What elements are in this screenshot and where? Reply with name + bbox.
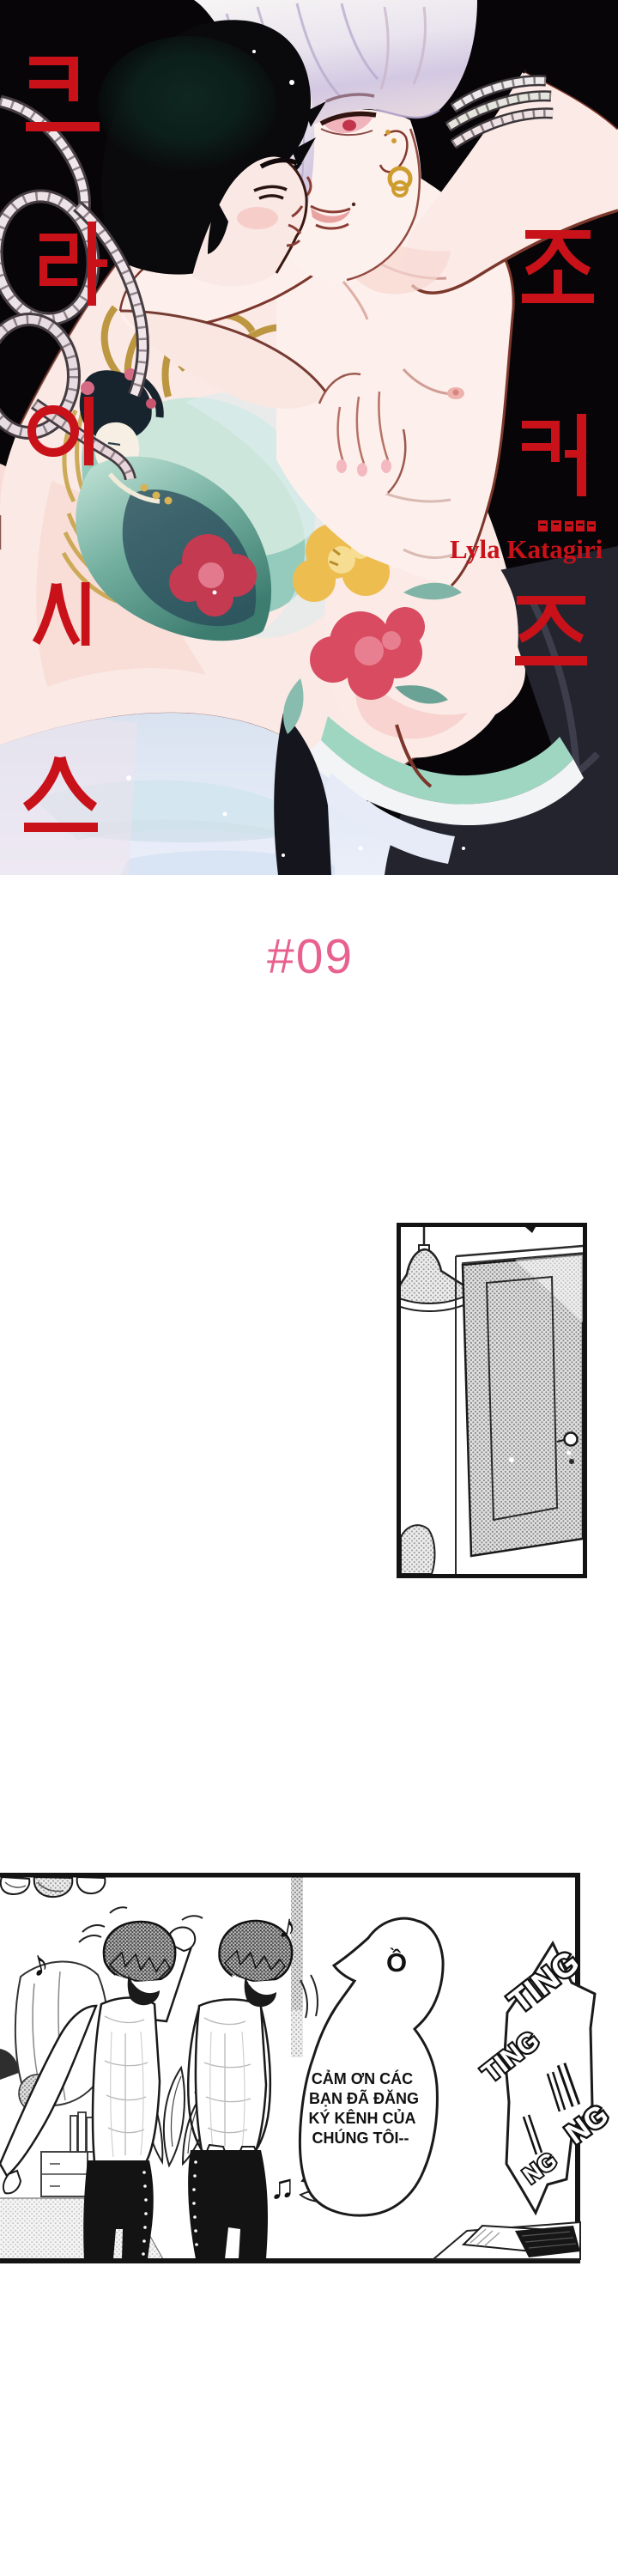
svg-text:Lyla Katagiri: Lyla Katagiri bbox=[450, 534, 603, 564]
svg-text:CHÚNG TÔI--: CHÚNG TÔI-- bbox=[312, 2129, 409, 2147]
svg-text:BẠN ĐÃ ĐĂNG: BẠN ĐÃ ĐĂNG bbox=[309, 2089, 419, 2107]
svg-text:KÝ KÊNH CỦA: KÝ KÊNH CỦA bbox=[308, 2109, 415, 2127]
svg-text:♫: ♫ bbox=[270, 2168, 295, 2206]
svg-text:#09: #09 bbox=[267, 929, 354, 984]
svg-text:CẢM ƠN CÁC: CẢM ƠN CÁC bbox=[312, 2069, 413, 2087]
svg-text:Ồ: Ồ bbox=[386, 1947, 407, 1978]
